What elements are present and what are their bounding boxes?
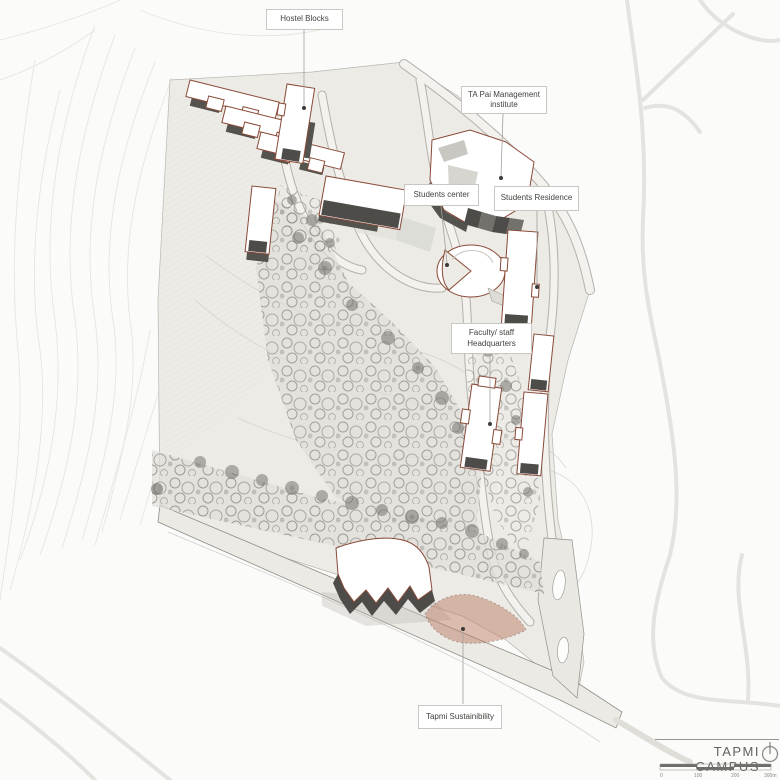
label-faculty-staff-headquarters: Faculty/ staff Headquarters: [451, 323, 532, 354]
label-tapmi-sustainability: Tapmi Sustainibility: [418, 705, 502, 729]
label-students-residence: Students Residence: [494, 186, 579, 211]
site-plan-page: Hostel Blocks TA Pai Management institut…: [0, 0, 780, 780]
scale-tick-200: 200: [731, 773, 740, 779]
title-divider: [655, 739, 779, 740]
site-plan-drawing: [0, 0, 780, 780]
scale-tick-0: 0: [660, 773, 663, 779]
scale-bar: 0 100 200 300m: [658, 761, 778, 779]
label-students-center: Students center: [404, 184, 479, 206]
label-ta-pai-management-institute: TA Pai Management institute: [461, 86, 547, 114]
scale-tick-100: 100: [694, 773, 703, 779]
label-hostel-blocks: Hostel Blocks: [266, 9, 343, 30]
scale-tick-300m: 300m: [764, 773, 777, 779]
north-arrow-icon: [760, 741, 780, 763]
